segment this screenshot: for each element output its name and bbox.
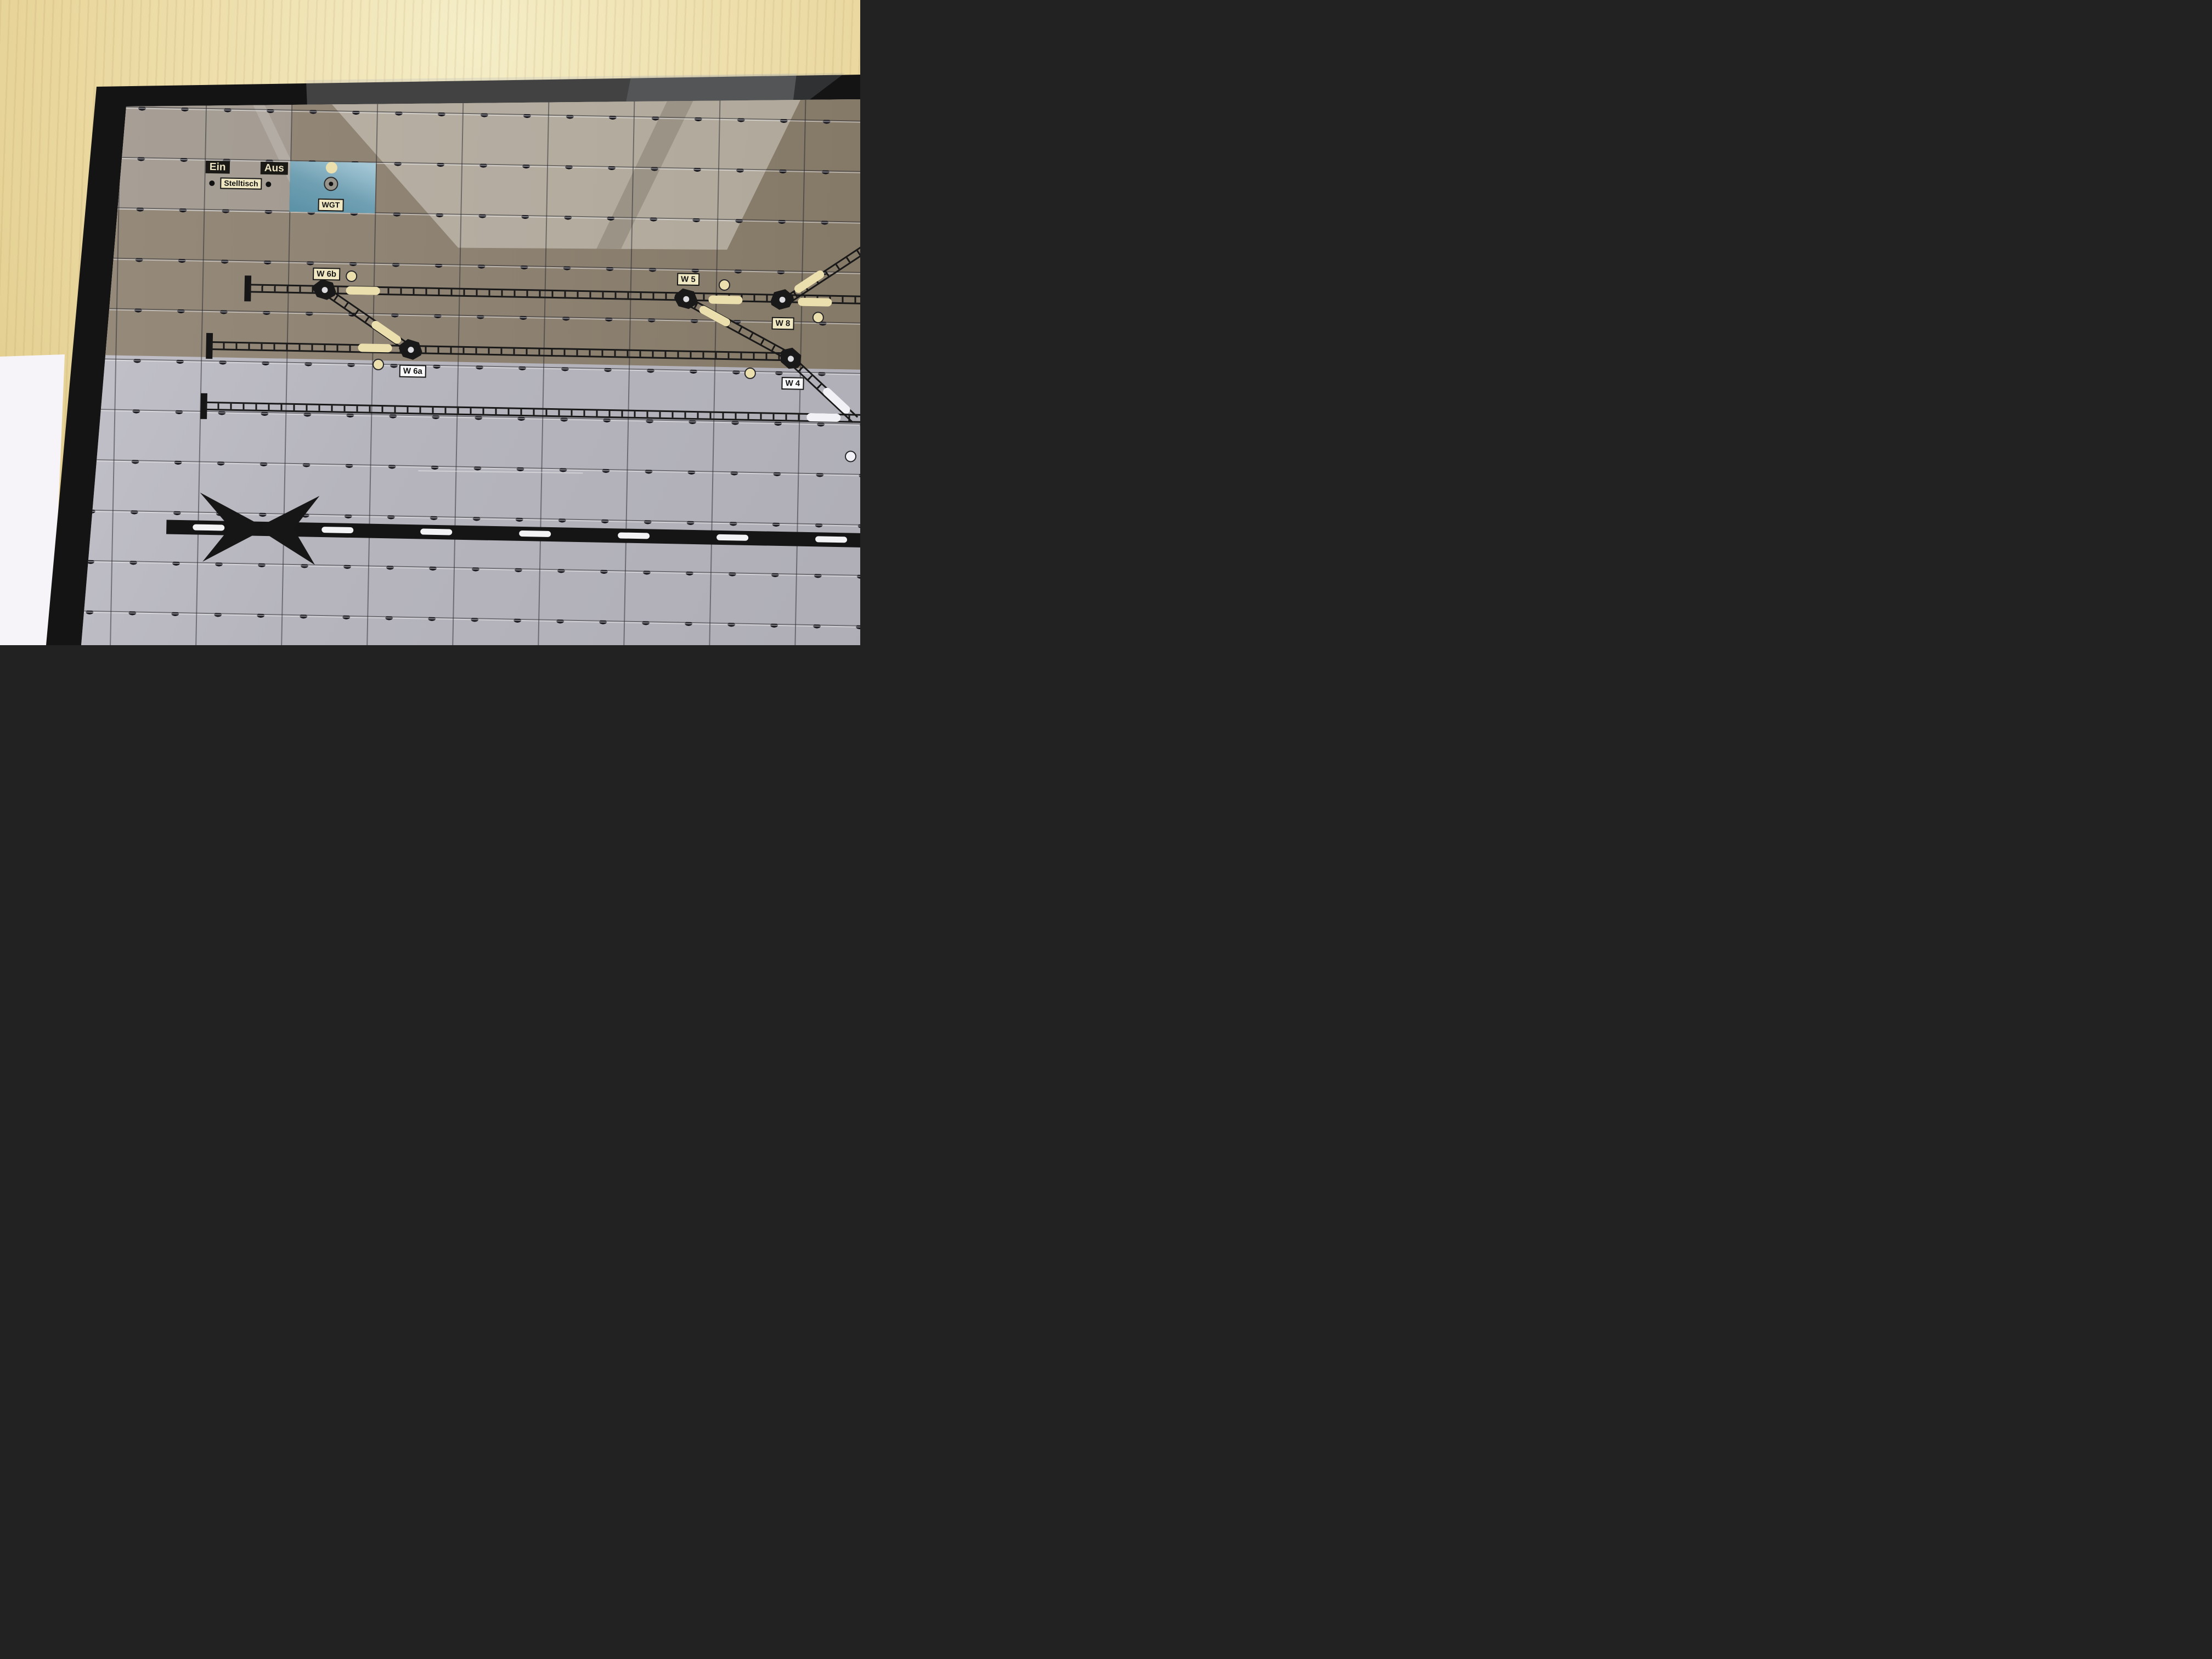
turnout-label-w6a: W 6a: [399, 365, 426, 378]
turnout-label-w6b: W 6b: [313, 268, 340, 281]
road-dash: [716, 534, 748, 541]
road-dash: [519, 531, 551, 537]
desk-surface: WGT Ein Aus Stelltisch: [0, 0, 860, 645]
wgt-label: WGT: [318, 199, 343, 212]
turnout-label-w4: W 4: [781, 377, 804, 390]
turnout-label-w5: W 5: [677, 273, 699, 286]
track-occupancy-pill: [806, 413, 840, 422]
track-occupancy-pill: [358, 343, 392, 352]
road-dash: [321, 527, 353, 533]
ein-label: Ein: [206, 161, 230, 174]
stelltisch-label: Stelltisch: [220, 177, 262, 189]
road-dash: [420, 528, 452, 535]
track-occupancy-pill: [346, 286, 380, 295]
level-crossing-icon: [199, 493, 319, 565]
road-dash: [618, 532, 650, 539]
panel-content: WGT Ein Aus Stelltisch: [115, 106, 860, 645]
track-occupancy-pill: [708, 295, 742, 304]
road-dash: [815, 536, 847, 543]
track-occupancy-pill: [798, 298, 832, 307]
turnout-label-w8: W 8: [771, 317, 794, 330]
aus-label: Aus: [261, 162, 288, 175]
